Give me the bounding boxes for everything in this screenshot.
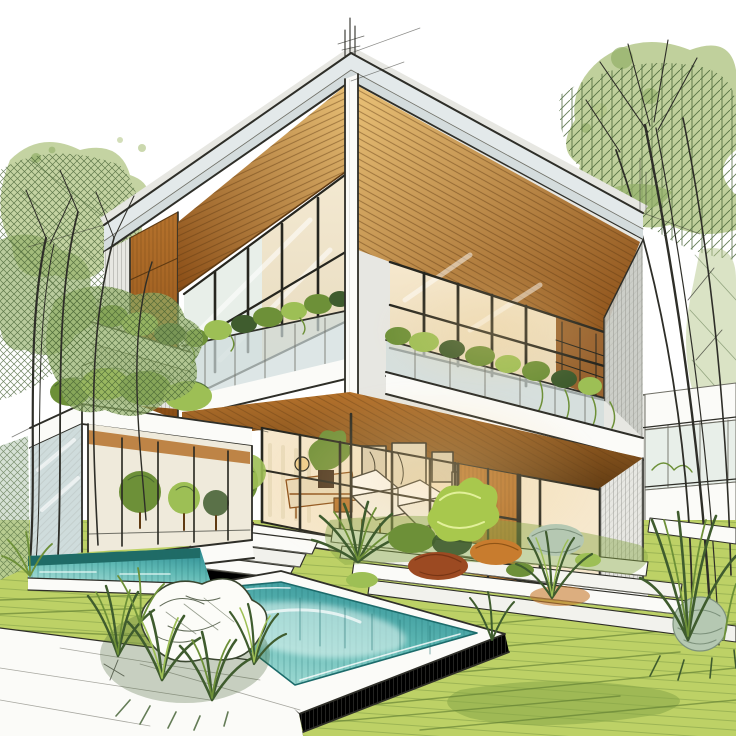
house-sketch-illustration	[0, 0, 736, 736]
pavilion-interior	[88, 424, 252, 552]
left-hedge	[0, 436, 30, 580]
shrub-green	[388, 523, 436, 553]
balcony-glow	[375, 265, 615, 395]
sketch-canvas	[0, 0, 736, 736]
corner-pier	[345, 74, 358, 407]
